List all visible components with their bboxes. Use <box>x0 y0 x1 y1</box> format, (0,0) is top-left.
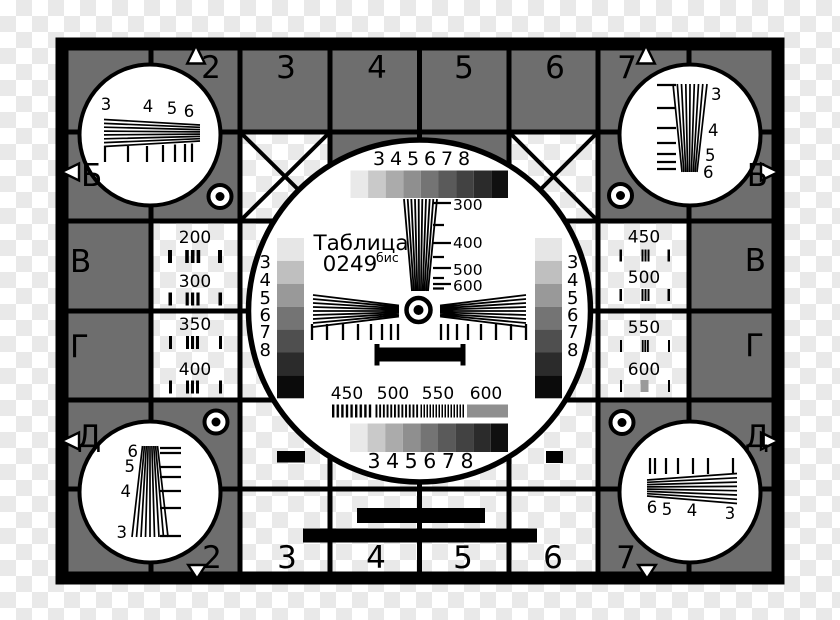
bullseye-icon <box>611 411 634 434</box>
top-col-number: 7 <box>617 50 637 86</box>
gray-strip-right <box>535 238 562 398</box>
gray-step-label: 8 <box>458 148 470 170</box>
bl-wedge-label: 5 <box>125 457 136 476</box>
card-code: 0249 <box>323 252 378 277</box>
gray-step-label: 3 <box>373 148 385 170</box>
burst-label: 600 <box>470 384 502 404</box>
bottom-col-number: 5 <box>453 540 473 576</box>
black-block-left <box>277 451 305 463</box>
top-col-number: 6 <box>545 50 565 86</box>
bottom-col-number: 6 <box>543 540 563 576</box>
bottom-bar-long <box>303 529 537 543</box>
row-letter-left: Д <box>77 419 101 455</box>
top-col-number: 4 <box>367 50 387 86</box>
freq-tick-label: 400 <box>453 234 483 252</box>
tv-test-card: 3 4 5 6 3 4 5 6 6 5 4 3 <box>0 0 840 620</box>
gray-staircase-bottom <box>350 424 508 453</box>
burst-label: 500 <box>377 384 409 404</box>
gray-step-label: 4 <box>390 148 402 170</box>
top-col-number: 2 <box>201 50 221 86</box>
bottom-col-number: 4 <box>366 540 386 576</box>
br-wedge-label: 4 <box>687 501 698 520</box>
row-letter-left: Г <box>70 329 89 365</box>
tr-wedge-label: 6 <box>703 163 714 182</box>
row-letter-left: В <box>70 244 91 280</box>
freq-tick-label: 300 <box>453 196 483 214</box>
bottom-bar-short <box>357 508 485 523</box>
freq-tick-label: 600 <box>453 277 483 295</box>
corner-circle-br <box>620 422 761 563</box>
resolution-label: 450 <box>628 228 660 248</box>
black-block-right <box>546 451 563 463</box>
center-bullseye <box>407 298 431 322</box>
gray-staircase-top <box>351 171 509 199</box>
resolution-label: 600 <box>628 360 660 380</box>
row-letter-left: Б <box>81 158 102 194</box>
row-letter-right: Б <box>747 158 768 194</box>
resolution-label: 200 <box>179 228 211 248</box>
br-wedge-label: 3 <box>725 504 736 523</box>
row-letter-right: Д <box>745 419 769 455</box>
top-col-number: 3 <box>276 50 296 86</box>
bl-wedge-label: 3 <box>117 523 128 542</box>
transparency-checkerboard: 3 4 5 6 3 4 5 6 6 5 4 3 <box>0 0 840 620</box>
bl-wedge-label: 4 <box>121 482 132 501</box>
gray-step-label: 7 <box>441 148 453 170</box>
burst-label: 450 <box>331 384 363 404</box>
gray-step-label: 4 <box>386 449 399 473</box>
tl-wedge-label: 4 <box>143 97 154 116</box>
bottom-col-number: 7 <box>616 540 636 576</box>
resolution-label: 350 <box>179 315 211 335</box>
resolution-label: 500 <box>628 268 660 288</box>
gray-strip-left <box>277 238 304 398</box>
bullseye-icon <box>205 411 228 434</box>
resolution-label: 300 <box>179 272 211 292</box>
br-wedge-label: 5 <box>662 500 673 519</box>
gray-step-label: 5 <box>407 148 419 170</box>
tl-wedge-label: 6 <box>184 102 195 121</box>
gray-step-label: 6 <box>424 148 436 170</box>
card-code-suffix: бис <box>376 250 399 265</box>
tr-wedge-label: 4 <box>708 121 719 140</box>
bottom-col-number: 2 <box>202 540 222 576</box>
bullseye-icon <box>209 185 232 208</box>
br-wedge-label: 6 <box>647 498 658 517</box>
bullseye-icon <box>609 184 632 207</box>
gray-step-label: 5 <box>405 449 418 473</box>
tl-wedge-label: 5 <box>167 99 178 118</box>
gray-step-label: 7 <box>442 449 455 473</box>
strip-label-left: 8 <box>260 340 271 361</box>
resolution-label: 550 <box>628 318 660 338</box>
bottom-col-number: 3 <box>277 540 297 576</box>
tr-wedge-label: 3 <box>711 85 722 104</box>
gray-step-label: 3 <box>367 449 380 473</box>
row-letter-right: Г <box>745 328 764 364</box>
burst-label: 550 <box>422 384 454 404</box>
strip-label-right: 8 <box>567 340 578 361</box>
gray-step-label: 6 <box>423 449 436 473</box>
resolution-label: 400 <box>179 360 211 380</box>
top-col-number: 5 <box>454 50 474 86</box>
row-letter-right: В <box>745 243 766 279</box>
tl-wedge-label: 3 <box>101 95 112 114</box>
gray-step-label: 8 <box>460 449 473 473</box>
